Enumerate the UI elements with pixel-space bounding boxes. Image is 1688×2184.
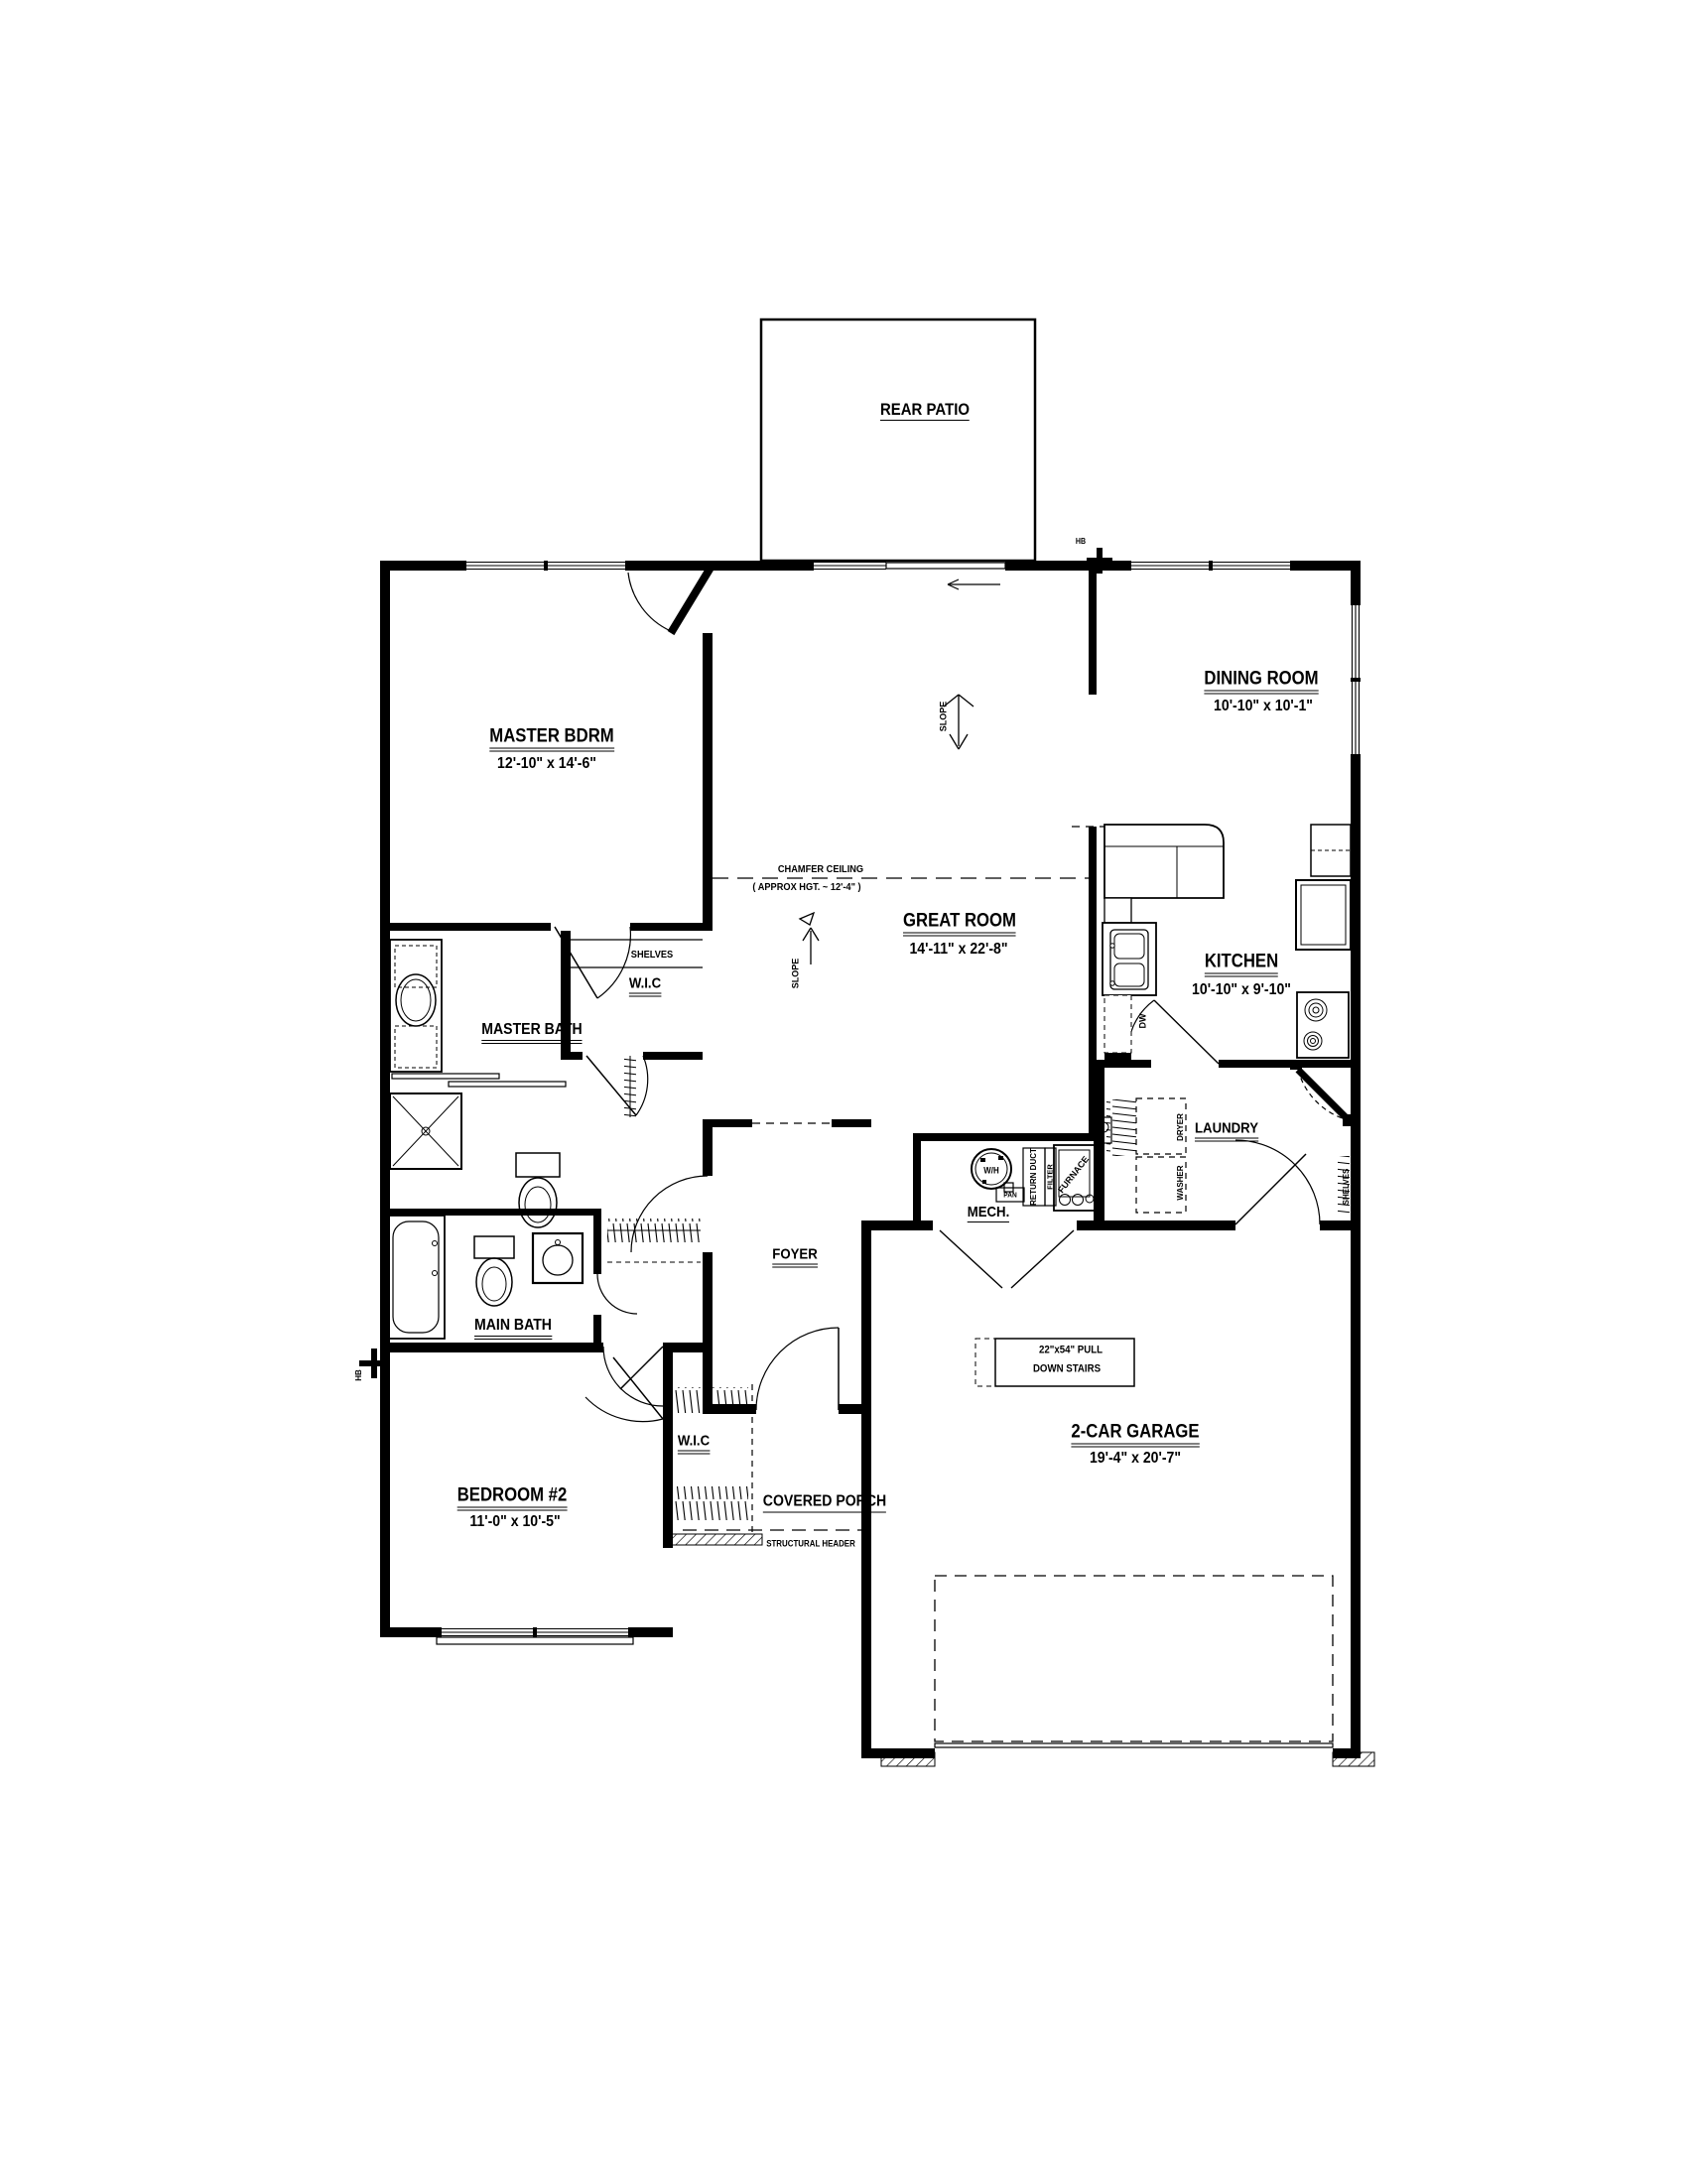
pantry-wall bbox=[1290, 1062, 1351, 1126]
master-toilet-tank bbox=[516, 1153, 560, 1177]
note-water-heater: W/H bbox=[983, 1167, 998, 1176]
master-sink bbox=[396, 974, 436, 1026]
dims-bedroom2: 11'-0" x 10'-5" bbox=[469, 1514, 560, 1530]
garage-features bbox=[881, 1339, 1374, 1766]
kitchen-peninsula-counter bbox=[1104, 825, 1224, 898]
garage-door-panel bbox=[935, 1743, 1333, 1747]
structural-header-hatch bbox=[671, 1534, 762, 1545]
label-master-bdrm: MASTER BDRM bbox=[489, 727, 613, 752]
window-great-room bbox=[814, 563, 1005, 570]
note-chamfer-ceiling-1: CHAMFER CEILING bbox=[778, 864, 863, 875]
label-covered-porch: COVERED PORCH bbox=[763, 1494, 886, 1513]
dims-master-bdrm: 12'-10" x 14'-6" bbox=[497, 756, 596, 772]
master-vanity bbox=[390, 940, 442, 1072]
dishwasher bbox=[1104, 995, 1131, 1053]
note-hose-bib-left: HB bbox=[355, 1369, 363, 1381]
note-dishwasher: DW bbox=[1139, 1014, 1148, 1029]
note-washer: WASHER bbox=[1177, 1165, 1185, 1200]
label-master-bath: MASTER BATH bbox=[481, 1022, 582, 1044]
wic2-rod-top bbox=[675, 1387, 748, 1413]
note-chamfer-ceiling-2: ( APPROX HGT. ~ 12'-4" ) bbox=[752, 882, 860, 893]
label-main-bath: MAIN BATH bbox=[474, 1318, 552, 1340]
note-structural-header: STRUCTURAL HEADER bbox=[766, 1540, 855, 1549]
wic2-rod-bottom bbox=[675, 1486, 748, 1520]
window-master-bdrm bbox=[466, 561, 625, 571]
windows bbox=[437, 561, 1361, 1644]
patio-door-arrow bbox=[948, 579, 1000, 589]
window-bedroom2 bbox=[437, 1627, 633, 1644]
note-return-duct: RETURN DUCT bbox=[1030, 1148, 1038, 1206]
floor-plan: REAR PATIO MASTER BDRM 12'-10" x 14'-6" … bbox=[0, 0, 1688, 2184]
note-slope-hall: SLOPE bbox=[792, 959, 801, 989]
label-garage: 2-CAR GARAGE bbox=[1071, 1423, 1199, 1448]
window-dining bbox=[1131, 561, 1290, 571]
dims-great-room: 14'-11" x 22'-8" bbox=[909, 942, 1007, 958]
dims-kitchen: 10'-10" x 9'-10" bbox=[1192, 982, 1291, 998]
label-great-room: GREAT ROOM bbox=[903, 912, 1016, 937]
note-dryer: DRYER bbox=[1177, 1113, 1185, 1141]
note-shelves-laundry: SHELVES bbox=[1343, 1169, 1351, 1206]
main-sink bbox=[543, 1245, 573, 1275]
master-door-chamfer bbox=[671, 568, 711, 633]
slope-arrow-hall bbox=[800, 913, 819, 964]
label-laundry: LAUNDRY bbox=[1195, 1121, 1258, 1142]
hall-closet-rod bbox=[607, 1219, 701, 1242]
label-wic2: W.I.C bbox=[678, 1434, 710, 1455]
main-toilet-tank bbox=[474, 1236, 514, 1258]
label-mech: MECH. bbox=[968, 1205, 1010, 1222]
master-bath-fixtures bbox=[390, 940, 566, 1227]
label-shelves-master: SHELVES bbox=[631, 950, 673, 961]
label-wic-master: W.I.C bbox=[629, 976, 661, 997]
note-filter: FILTER bbox=[1046, 1164, 1054, 1190]
dims-dining-room: 10'-10" x 10'-1" bbox=[1214, 699, 1313, 714]
note-pull-down-1: 22"x54" PULL bbox=[1039, 1346, 1103, 1356]
floor-plan-drawing bbox=[0, 0, 1688, 2184]
note-slope-great-room: SLOPE bbox=[940, 702, 949, 732]
ceiling-lines bbox=[683, 827, 1104, 1530]
label-bedroom2: BEDROOM #2 bbox=[457, 1486, 568, 1511]
main-toilet bbox=[476, 1258, 512, 1306]
note-pull-down-2: DOWN STAIRS bbox=[1033, 1364, 1101, 1375]
slope-arrow-great-room bbox=[944, 695, 974, 749]
note-pan: PAN bbox=[1003, 1191, 1016, 1199]
rear-patio-outline bbox=[761, 320, 1035, 561]
slope-arrows bbox=[800, 579, 1000, 964]
hose-bibs bbox=[359, 548, 1112, 1378]
label-foyer: FOYER bbox=[772, 1247, 817, 1268]
dims-garage: 19'-4" x 20'-7" bbox=[1090, 1451, 1181, 1467]
note-hose-bib-top: HB bbox=[1076, 538, 1086, 546]
label-dining-room: DINING ROOM bbox=[1204, 670, 1318, 695]
label-kitchen: KITCHEN bbox=[1205, 953, 1278, 977]
window-dining-right bbox=[1351, 605, 1361, 754]
pocket-door bbox=[392, 1074, 499, 1079]
kitchen-wall-cabinet bbox=[1311, 825, 1351, 876]
label-rear-patio: REAR PATIO bbox=[880, 401, 970, 421]
bathtub bbox=[387, 1216, 445, 1339]
overhead-garage-door bbox=[935, 1576, 1333, 1741]
